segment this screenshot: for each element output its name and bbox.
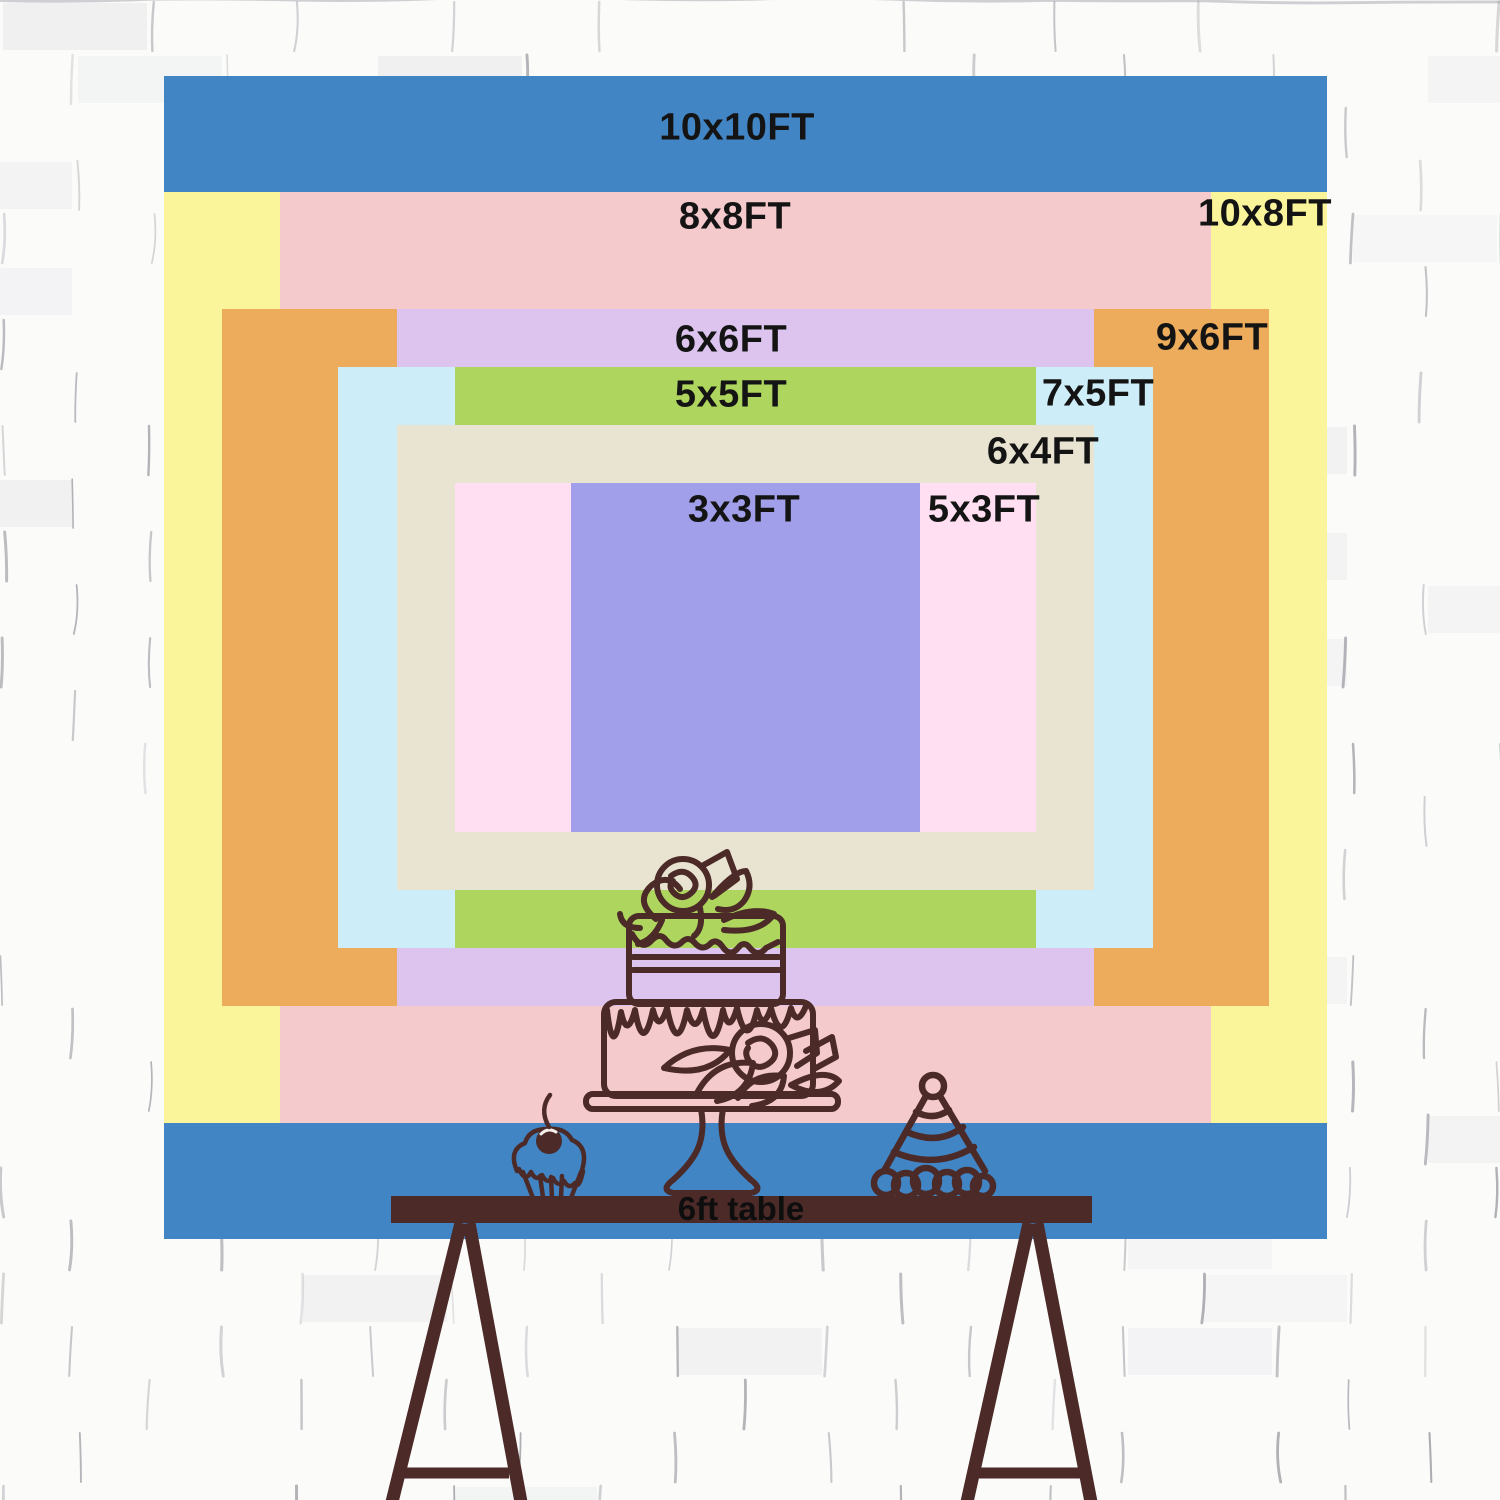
table-legs (392, 1223, 1091, 1500)
cake-illustration (586, 852, 839, 1193)
cupcake-illustration (514, 1095, 584, 1200)
table-size-label: 6ft table (678, 1190, 805, 1228)
cherry (536, 1128, 562, 1154)
decor-illustrations (0, 0, 1500, 1500)
party-hat-illustration (874, 1075, 993, 1197)
backdrop-size-chart: 10x10FT10x8FT8x8FT9x6FT6x6FT7x5FT5x5FT6x… (0, 0, 1500, 1500)
table-illustration (391, 1196, 1092, 1500)
